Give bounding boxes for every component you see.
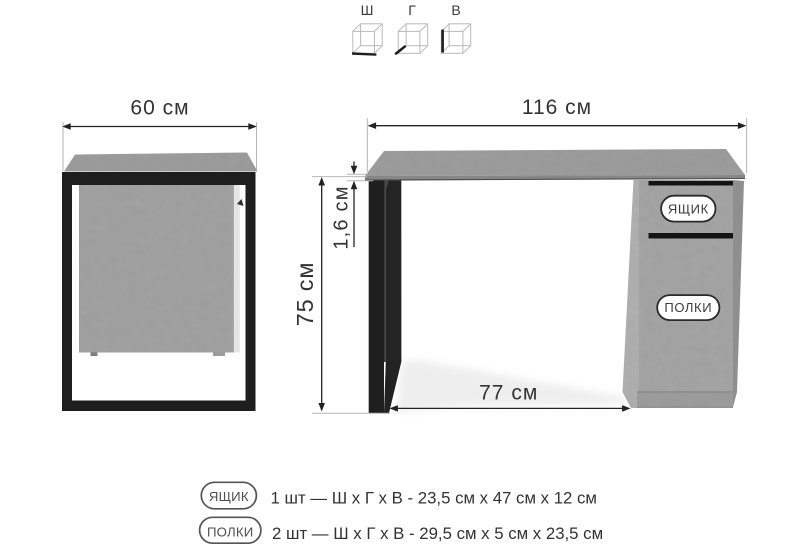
svg-text:1 шт — Ш х Г х В - 23,5 см х 4: 1 шт — Ш х Г х В - 23,5 см х 47 см х 12 …	[271, 489, 597, 508]
svg-text:ПОЛКИ: ПОЛКИ	[664, 300, 712, 315]
svg-text:ЯЩИК: ЯЩИК	[668, 201, 709, 216]
svg-text:2 шт — Ш х Г х В - 29,5 см х: 2 шт — Ш х Г х В - 29,5 см х 5 см х 23,5…	[272, 524, 603, 543]
svg-text:ЯЩИК: ЯЩИК	[209, 489, 249, 504]
svg-text:77 см: 77 см	[479, 382, 538, 405]
svg-text:116 см: 116 см	[522, 96, 592, 119]
svg-text:75 см: 75 см	[292, 262, 318, 327]
svg-text:В: В	[451, 2, 460, 18]
svg-text:ПОЛКИ: ПОЛКИ	[207, 524, 253, 539]
svg-text:Г: Г	[408, 2, 416, 18]
svg-text:Ш: Ш	[361, 2, 374, 18]
svg-text:60 см: 60 см	[130, 97, 189, 120]
svg-text:1,6 см: 1,6 см	[331, 185, 353, 249]
